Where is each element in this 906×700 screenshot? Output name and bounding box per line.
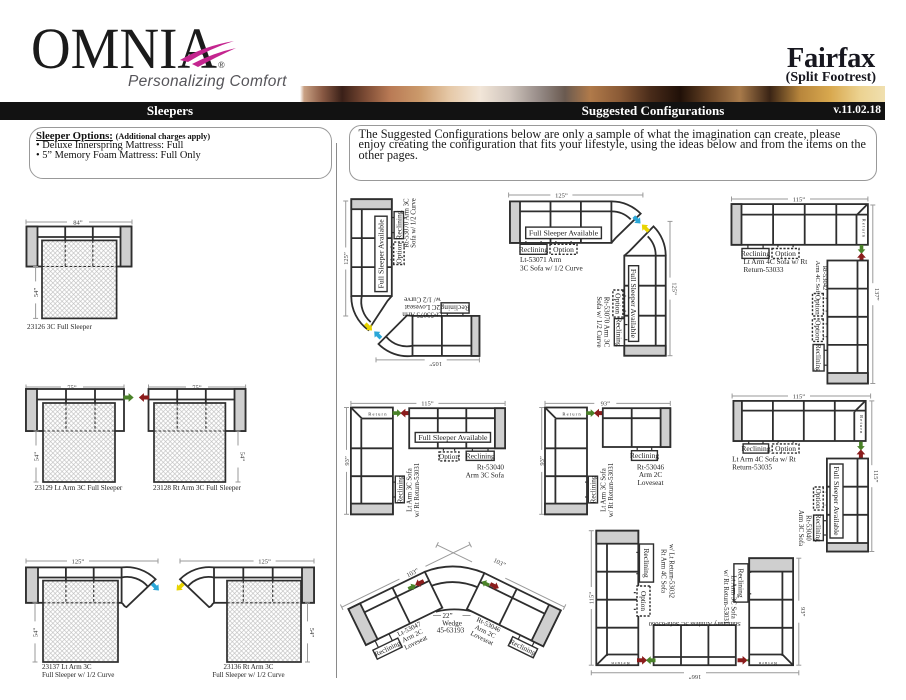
svg-text:Reclining: Reclining [642, 548, 651, 577]
svg-text:R e t u r n: R e t u r n [859, 415, 864, 434]
svg-text:Arm 3C Sofa: Arm 3C Sofa [466, 472, 505, 480]
svg-text:166”: 166” [689, 673, 702, 680]
svg-text:Reclining: Reclining [440, 303, 469, 312]
svg-text:Reclining: Reclining [589, 475, 597, 503]
svg-text:Reclining: Reclining [630, 451, 659, 460]
svg-text:Full Sleeper Available: Full Sleeper Available [832, 466, 841, 536]
svg-text:115”: 115” [793, 393, 806, 400]
svg-text:93”: 93” [799, 607, 806, 617]
svg-text:Loveseat: Loveseat [638, 479, 664, 487]
svg-text:125”: 125” [343, 252, 350, 265]
svg-text:Full Sleeper w/ 1/2 Curve: Full Sleeper w/ 1/2 Curve [212, 671, 284, 679]
svg-text:Full Sleeper Available: Full Sleeper Available [377, 219, 386, 289]
svg-text:Lt Arm 3C Sofa: Lt Arm 3C Sofa [601, 468, 608, 512]
svg-text:Lt Arm 3C Sofa: Lt Arm 3C Sofa [730, 575, 737, 619]
svg-text:Option: Option [775, 444, 796, 453]
svg-text:Arm 3C Sofa: Arm 3C Sofa [797, 510, 804, 546]
svg-text:Option: Option [395, 243, 404, 264]
svg-text:Reclining: Reclining [814, 514, 822, 542]
svg-text:84”: 84” [73, 219, 83, 226]
svg-text:Reclining: Reclining [466, 451, 495, 460]
svg-text:Reclining: Reclining [741, 249, 770, 258]
svg-text:Lt-53075 Arm: Lt-53075 Arm [402, 311, 443, 319]
svg-text:Option: Option [775, 249, 796, 258]
svg-text:23137 Lt Arm 3C: 23137 Lt Arm 3C [42, 663, 92, 671]
svg-text:Option: Option [813, 295, 821, 315]
svg-text:23136 Rt Arm 3C: 23136 Rt Arm 3C [224, 663, 274, 671]
svg-text:Reclining: Reclining [814, 344, 822, 372]
svg-text:115”: 115” [421, 401, 434, 408]
svg-text:54”: 54” [33, 452, 40, 462]
svg-text:R e t u r n: R e t u r n [758, 661, 777, 666]
svg-text:w/ Rt Return-53031: w/ Rt Return-53031 [608, 463, 615, 517]
svg-text:Rt-53070 Arm 3C: Rt-53070 Arm 3C [403, 198, 410, 248]
svg-text:Arm 4C Sofa: Arm 4C Sofa [814, 261, 821, 296]
svg-text:93”: 93” [344, 456, 351, 466]
svg-text:23126 3C Full Sleeper: 23126 3C Full Sleeper [27, 323, 92, 331]
svg-text:Reclining: Reclining [615, 318, 624, 347]
svg-text:R e t u r n: R e t u r n [861, 219, 866, 238]
svg-text:115”: 115” [793, 196, 806, 203]
svg-text:R e t u r n: R e t u r n [562, 411, 581, 416]
svg-text:Full Sleeper w/ 1/2 Curve: Full Sleeper w/ 1/2 Curve [42, 671, 114, 679]
svg-text:93”: 93” [601, 401, 611, 408]
svg-text:Lt Arm 4C Sofa w/ Rt: Lt Arm 4C Sofa w/ Rt [744, 258, 808, 266]
svg-text:125”: 125” [258, 558, 271, 565]
svg-text:115”: 115” [589, 592, 596, 605]
svg-text:Option: Option [639, 591, 647, 611]
svg-text:Reclining: Reclining [741, 444, 770, 453]
svg-text:Full Sleeper Available: Full Sleeper Available [629, 269, 638, 339]
svg-text:Return-53033: Return-53033 [744, 266, 784, 274]
svg-text:105”: 105” [429, 360, 442, 367]
svg-text:Rt Arm 4C Sofa: Rt Arm 4C Sofa [660, 549, 667, 593]
svg-text:w/ 1/2 Curve: w/ 1/2 Curve [404, 296, 441, 304]
svg-text:Rt-53040: Rt-53040 [805, 515, 812, 541]
svg-text:54”: 54” [308, 628, 315, 638]
svg-text:Sofa w/ 1/2 Curve: Sofa w/ 1/2 Curve [411, 198, 418, 248]
svg-text:Reclining: Reclining [396, 475, 404, 503]
svg-text:2C Loveseat: 2C Loveseat [405, 303, 440, 311]
svg-text:Rt-53040: Rt-53040 [477, 464, 505, 472]
svg-text:Full Sleeper Available: Full Sleeper Available [418, 433, 488, 442]
svg-text:R e t u r n: R e t u r n [368, 411, 387, 416]
svg-text:w/ Lt Return-53032: w/ Lt Return-53032 [667, 544, 674, 599]
svg-text:Lt Arm 4C Sofa w/ Rt: Lt Arm 4C Sofa w/ Rt [732, 456, 796, 464]
svg-text:45-63193: 45-63193 [437, 627, 465, 635]
svg-text:Reclining: Reclining [736, 568, 745, 597]
svg-text:w/ Rt Return-53031: w/ Rt Return-53031 [722, 570, 729, 624]
svg-text:w/ Rt Return-53031: w/ Rt Return-53031 [414, 463, 421, 517]
svg-text:125”: 125” [555, 192, 568, 199]
svg-text:23129 Lt Arm 3C Full Sleeper: 23129 Lt Arm 3C Full Sleeper [35, 484, 123, 492]
svg-text:Option: Option [553, 245, 574, 254]
svg-text:137”: 137” [873, 288, 880, 301]
svg-text:Reclining: Reclining [394, 210, 403, 239]
svg-text:23128 Rt Arm 3C Full Sleeper: 23128 Rt Arm 3C Full Sleeper [153, 484, 242, 492]
svg-text:Full Sleeper Available: Full Sleeper Available [529, 229, 599, 238]
svg-text:54”: 54” [238, 452, 245, 462]
svg-text:54”: 54” [33, 288, 40, 298]
svg-text:Option: Option [813, 320, 821, 340]
svg-text:Option: Option [613, 293, 622, 314]
svg-text:Reclining: Reclining [519, 245, 548, 254]
svg-text:Lt-53071 Arm: Lt-53071 Arm [520, 256, 562, 264]
svg-text:103”: 103” [492, 557, 507, 569]
svg-text:54”: 54” [32, 628, 39, 638]
svg-text:R e t u r n: R e t u r n [611, 661, 630, 666]
svg-text:125”: 125” [72, 558, 85, 565]
svg-text:Return-53035: Return-53035 [732, 464, 772, 472]
svg-text:Option: Option [439, 453, 459, 461]
svg-text:Option: Option [814, 489, 822, 509]
svg-text:Sofa w/ 1/2 Curve: Sofa w/ 1/2 Curve [595, 296, 603, 347]
svg-text:Lt Arm 3C Sofa: Lt Arm 3C Sofa [407, 468, 414, 512]
svg-text:125”: 125” [670, 282, 677, 295]
svg-text:115”: 115” [872, 470, 879, 483]
svg-text:3C Sofa w/ 1/2 Curve: 3C Sofa w/ 1/2 Curve [520, 265, 583, 273]
